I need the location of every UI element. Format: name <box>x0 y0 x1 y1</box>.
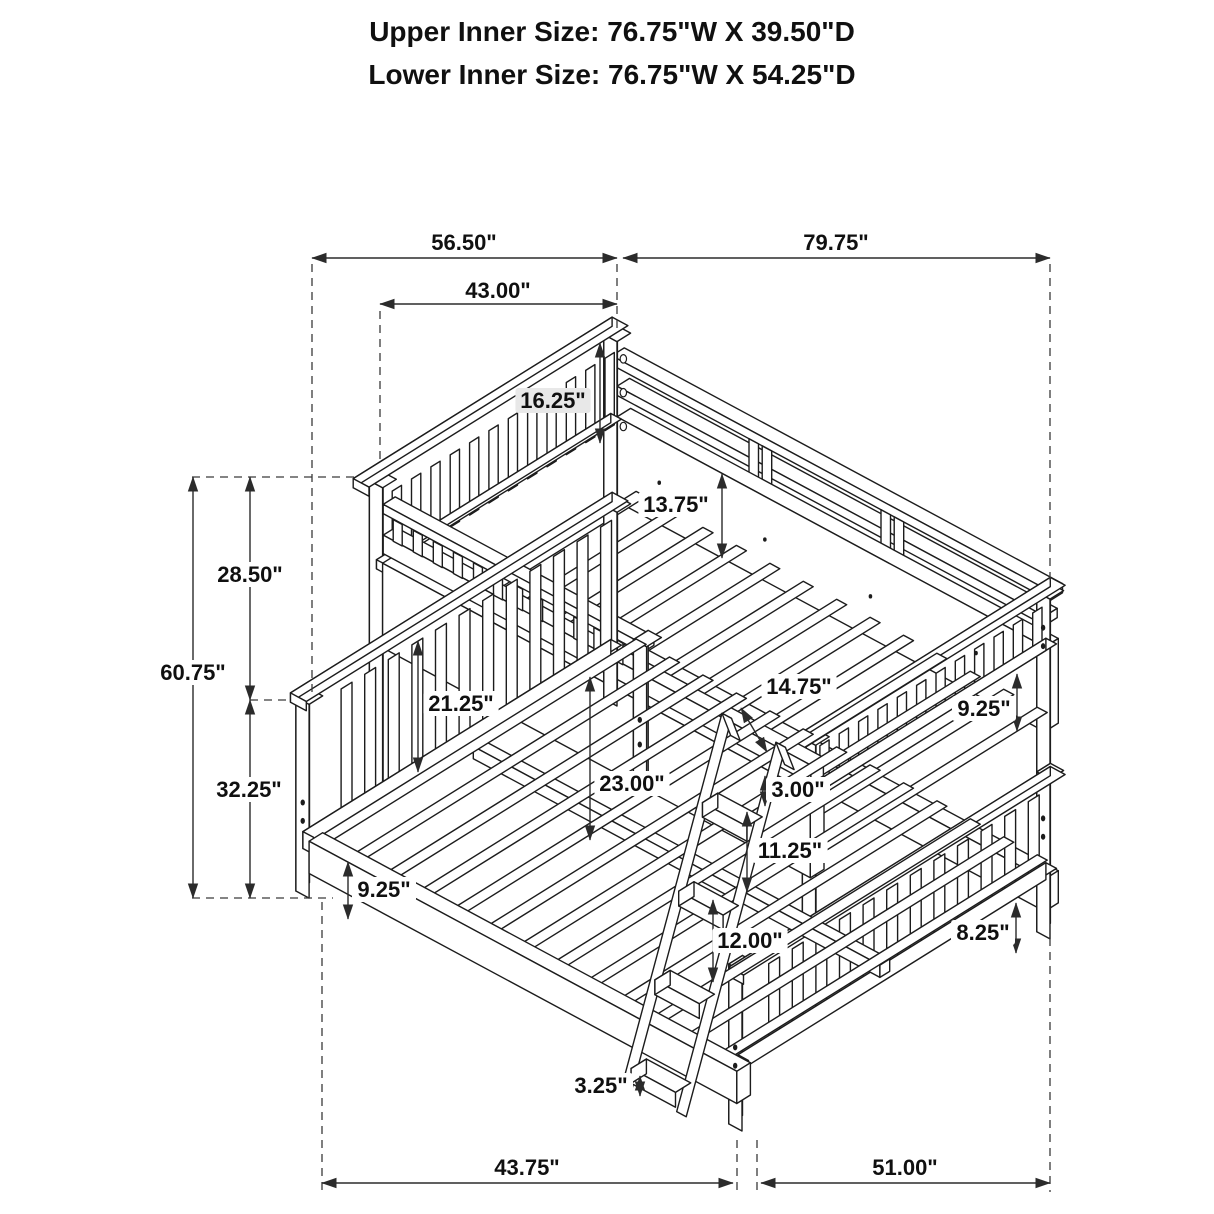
bolt-hole <box>620 422 626 430</box>
bolt-dot <box>301 799 305 805</box>
lower-headboard-slat <box>388 653 399 791</box>
bolt-dot <box>869 594 873 598</box>
bunk-bed-drawing <box>291 317 1066 1131</box>
dim-label-lower-section-height: 32.25" <box>216 777 281 802</box>
upper-front-guard-slat <box>453 552 462 578</box>
dim-label-upper-side-rail-depth: 13.75" <box>643 492 708 517</box>
lower-headboard-slat <box>365 668 376 806</box>
bolt-hole <box>620 355 626 363</box>
dim-label-ladder-foot-height: 3.25" <box>574 1073 627 1098</box>
dim-label-upper-headboard-height: 16.25" <box>520 388 585 413</box>
dim-label-upper-section-height: 28.50" <box>217 562 282 587</box>
upper-front-guard-slat <box>393 520 402 546</box>
lower-headboard-slat <box>506 579 517 717</box>
lower-headboard-slat <box>577 535 588 673</box>
dim-label-upper-headboard-width: 43.00" <box>465 278 530 303</box>
bolt-hole <box>620 388 626 396</box>
lower-headboard-slat <box>601 520 612 658</box>
dim-label-overall-height: 60.75" <box>160 660 225 685</box>
title-block: Upper Inner Size: 76.75"W X 39.50"D Lowe… <box>368 16 855 90</box>
dim-label-top-span-left: 56.50" <box>431 230 496 255</box>
dim-label-ladder-upper-rung-spacing: 11.25" <box>758 838 822 863</box>
lower-headboard-slat <box>459 609 470 747</box>
dim-label-upper-footboard-gap: 9.25" <box>957 696 1010 721</box>
lower-headboard-post <box>296 697 309 898</box>
upper-front-guard-slat <box>413 530 422 556</box>
lower-inner-size-title: Lower Inner Size: 76.75"W X 54.25"D <box>368 59 855 90</box>
dim-label-ladder-rung-spacing: 12.00" <box>717 928 782 953</box>
bolt-dot <box>657 481 661 485</box>
dim-label-bottom-span-left: 43.75" <box>494 1155 559 1180</box>
diagram-canvas: 56.50" 79.75" 43.00" 16.25" 13.75" 28.50… <box>0 0 1214 1214</box>
bunk-bed-dimension-diagram: 56.50" 79.75" 43.00" 16.25" 13.75" 28.50… <box>0 0 1214 1214</box>
bolt-dot <box>1041 625 1045 631</box>
bolt-dot <box>974 651 978 655</box>
upper-inner-size-title: Upper Inner Size: 76.75"W X 39.50"D <box>369 16 855 47</box>
bolt-dot <box>1041 834 1045 840</box>
dim-label-ladder-top-gap: 3.00" <box>771 777 824 802</box>
lower-headboard-slat <box>554 550 565 688</box>
dim-label-lower-headboard-panel-height: 21.25" <box>428 691 493 716</box>
bolt-dot <box>1041 643 1045 649</box>
lower-headboard-slat <box>341 682 352 820</box>
lower-headboard-slat <box>530 565 541 702</box>
bolt-dot <box>733 1063 737 1069</box>
dim-label-top-span-right: 79.75" <box>803 230 868 255</box>
bolt-dot <box>733 1044 737 1050</box>
bolt-dot <box>763 537 767 541</box>
bolt-dot <box>1041 815 1045 821</box>
bolt-dot <box>301 818 305 824</box>
upper-front-guard-slat <box>433 541 442 567</box>
dim-label-under-bunk-clearance: 23.00" <box>599 771 664 796</box>
bolt-dot <box>638 742 642 748</box>
dim-label-bottom-span-right: 51.00" <box>872 1155 937 1180</box>
dim-label-lower-footboard-clearance: 8.25" <box>956 920 1009 945</box>
bolt-dot <box>638 717 642 723</box>
dim-label-bunk-gap: 14.75" <box>766 674 831 699</box>
dim-label-lower-side-rail-height: 9.25" <box>357 877 410 902</box>
